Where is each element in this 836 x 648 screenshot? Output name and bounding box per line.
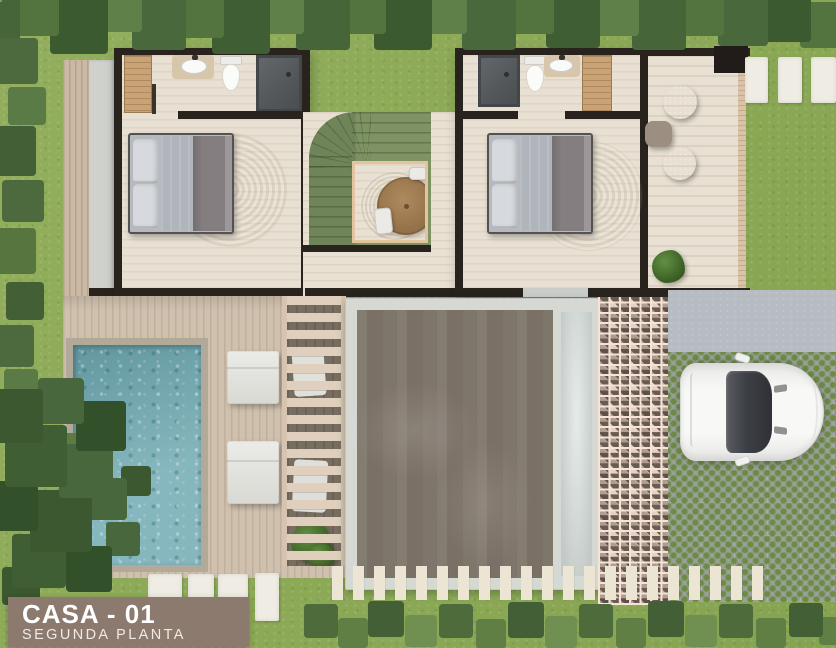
potted-plant <box>652 250 685 283</box>
blanket-fold <box>225 136 232 231</box>
bed-1 <box>128 133 234 234</box>
bed-sheet <box>520 136 553 231</box>
bedroom-1-block <box>114 48 310 297</box>
swimming-pool <box>66 338 208 572</box>
terrace-pouf <box>663 147 696 180</box>
faucet-icon <box>192 55 198 60</box>
lattice-grid <box>598 297 668 605</box>
blanket-fold <box>584 136 591 231</box>
car-trunk-seam <box>690 373 698 447</box>
stair-flight-upper <box>352 112 431 161</box>
pillow <box>492 184 518 228</box>
car <box>678 353 828 467</box>
plan-title: CASA - 01 <box>22 601 249 627</box>
slat-fence <box>332 566 768 600</box>
skylight-glass <box>357 310 553 578</box>
concrete-pad <box>668 290 836 352</box>
terrace-side-table <box>645 121 672 147</box>
toilet-tank <box>524 56 546 65</box>
hedge-south <box>0 0 2 2</box>
bathroom-1-wall <box>178 111 302 119</box>
pergola-slats <box>282 296 346 566</box>
bedroom-2-block <box>455 48 648 297</box>
pillow <box>133 139 159 183</box>
concrete-ledge <box>89 60 114 296</box>
parapet-segment <box>523 288 588 297</box>
bed-blanket <box>193 136 226 231</box>
sun-lounger <box>227 351 279 404</box>
pillow <box>133 184 159 228</box>
shower-2 <box>478 55 520 107</box>
stair-wall <box>303 245 431 252</box>
dining-chair <box>374 207 394 235</box>
stepping-stone <box>745 57 768 103</box>
bathroom-2-wall <box>463 111 518 119</box>
double-height-void <box>352 161 428 243</box>
wood-boardwalk <box>63 60 89 296</box>
skylight-side-panel <box>561 312 592 576</box>
faucet-icon <box>559 55 565 60</box>
bed-2 <box>487 133 593 234</box>
stepping-stone <box>811 57 836 103</box>
pillow <box>492 139 518 183</box>
bathroom-1-sink <box>180 58 208 75</box>
skylight-roof <box>345 298 602 590</box>
pergola <box>282 296 346 566</box>
stair-flight-lower <box>309 156 352 245</box>
breeze-block-screen <box>598 297 668 605</box>
bathroom-2-sink <box>548 58 574 73</box>
dining-chair <box>409 167 427 180</box>
shower-1 <box>256 55 302 112</box>
plan-title-banner: CASA - 01 SEGUNDA PLANTA <box>8 597 249 647</box>
hood-seam <box>802 381 818 441</box>
bathroom-1-door <box>152 84 156 114</box>
bathroom-2-closet <box>582 55 612 113</box>
bed-sheet <box>161 136 194 231</box>
roof-corner <box>714 46 748 73</box>
bathroom-2-wall <box>565 111 640 119</box>
stepping-stone <box>255 573 279 621</box>
floor-plan-render: CASA - 01 SEGUNDA PLANTA <box>0 0 836 648</box>
stepping-stone <box>778 57 802 103</box>
bed-blanket <box>552 136 585 231</box>
terrace-pouf <box>663 85 697 119</box>
terrace <box>648 55 745 292</box>
car-windshield <box>726 371 772 453</box>
plan-subtitle: SEGUNDA PLANTA <box>22 627 249 644</box>
bathroom-1-vanity <box>124 55 152 113</box>
sun-lounger <box>227 441 279 504</box>
